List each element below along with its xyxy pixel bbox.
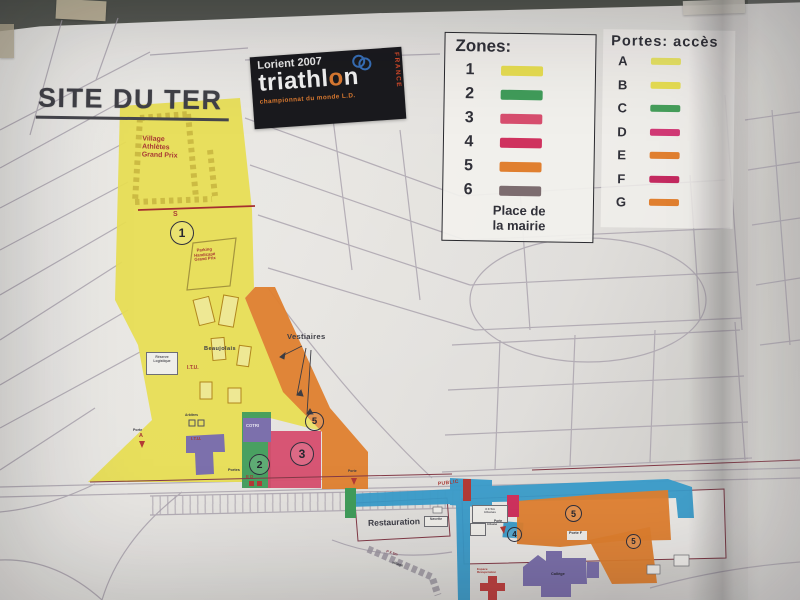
zone1-marker: 1 [170, 221, 194, 245]
zone-row-1: 1 [453, 63, 587, 78]
photo-of-site-map-poster: Village Athlètes Grand Prix S 1 Parking … [0, 0, 800, 600]
logo-france: FRANCE [393, 52, 403, 88]
porte-row-b: B [609, 79, 729, 92]
porte-f-swatch [649, 175, 679, 182]
label-beaujolais: Beaujolais [204, 346, 236, 352]
label-porte-f: Porte F [569, 531, 582, 535]
label-porte-4: Porte [494, 520, 502, 524]
event-logo: Lorient 2007 triathlon championnat du mo… [250, 47, 407, 129]
zone5-marker: 5 [305, 412, 324, 431]
label-arbitres: Arbitres [185, 414, 198, 418]
red-cross-building [480, 576, 505, 600]
zone1-swatch [501, 65, 543, 76]
zones-legend-title: Zones: [455, 36, 587, 58]
zone-row-4: 4 [452, 135, 586, 150]
label-itu: I.T.U. [187, 366, 199, 372]
porte-d-swatch [650, 128, 680, 135]
label-restauration: Restauration [368, 517, 420, 528]
label-start-s: S [173, 211, 178, 219]
portes-legend: Portes: accès A B C D E F G [601, 29, 736, 229]
porte-b-swatch [651, 81, 681, 88]
zone2-swatch [501, 89, 543, 100]
label-tribunes-box: 3 X 5m tribunes [472, 505, 508, 523]
zone6-swatch [499, 185, 541, 196]
porte-row-f: F [607, 173, 727, 186]
zone3-marker: 3 [290, 442, 314, 466]
zone5c-marker: 5 [626, 534, 641, 549]
label-village-athletes: Village Athlètes Grand Prix [142, 135, 179, 160]
label-vestiaires: Vestiaires [287, 333, 325, 342]
porte-row-e: E [608, 149, 728, 162]
zone-row-6: 6 [451, 183, 585, 198]
zone-row-3: 3 [452, 111, 586, 126]
poster-title: SITE DU TER [36, 83, 229, 122]
porte-row-g: G [607, 196, 727, 209]
zone3-swatch [500, 113, 542, 124]
zone-row-2: 2 [453, 87, 587, 102]
porte-row-d: D [608, 126, 728, 139]
porte-row-a: A [609, 55, 729, 68]
stall-row [368, 549, 438, 595]
portes-legend-title: Portes: accès [611, 33, 729, 51]
porte-a-swatch [651, 58, 681, 65]
zone4-band [507, 495, 519, 517]
label-college: Collège [551, 572, 565, 576]
label-porte-orange-tip: Porte [348, 470, 357, 474]
zone4-swatch [500, 137, 542, 148]
porte-c-swatch [650, 105, 680, 112]
porte-row-c: C [608, 102, 728, 115]
green-gate-rect [345, 488, 356, 518]
tape-top-right [683, 0, 745, 15]
zone5b-marker: 5 [565, 505, 582, 522]
label-reserve-logistique: Réserve Logistique [146, 352, 178, 375]
zone5-swatch [499, 161, 541, 172]
label-porte-a: A [139, 433, 143, 439]
label-gates-ed: E D [246, 475, 253, 480]
zones-legend: Zones: 1 2 3 4 5 6 Place de la mairie [441, 32, 596, 243]
label-porte-a-word: Porte [133, 428, 142, 432]
porte-g-swatch [649, 199, 679, 206]
zones-legend-note: Place de la mairie [492, 204, 584, 235]
tape-top-left [56, 0, 107, 21]
tribune-small-box [470, 523, 486, 536]
label-navette: Navette [424, 516, 448, 527]
zone-row-5: 5 [451, 159, 585, 174]
porte-e-swatch [650, 152, 680, 159]
label-itu-building: I.T.U. [191, 437, 201, 442]
label-portes-word: Portes [228, 468, 240, 472]
site-map: Village Athlètes Grand Prix S 1 Parking … [0, 0, 800, 600]
label-espace-recup: Espace Récupération [477, 568, 496, 575]
label-cotri: COTRI [246, 424, 259, 429]
tape-left-edge [0, 24, 14, 58]
rings-icon [352, 54, 375, 70]
zone2-marker: 2 [249, 454, 270, 475]
label-parking-handicape: Parking Handicapé Grand Prix [193, 247, 216, 263]
zone4-marker: 4 [507, 527, 522, 542]
